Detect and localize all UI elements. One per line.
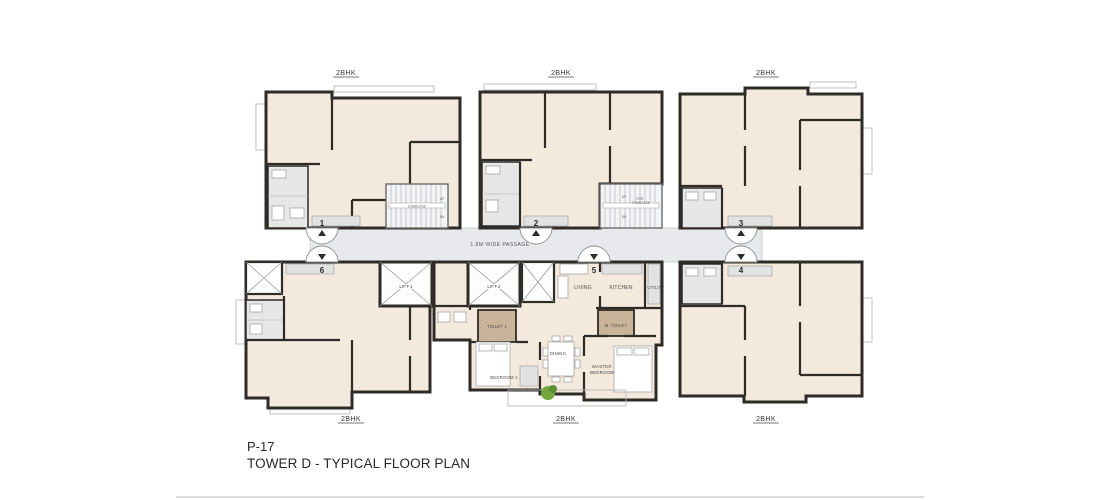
- wardrobe-icon: [520, 366, 538, 386]
- unit-type-top-right: 2BHK: [756, 68, 776, 77]
- floor-plan-drawing: UP STAIRCASE DN UP DN LIFT 1 LIFT 2 1.8M…: [0, 0, 1100, 500]
- room-label-master-bedroom: MASTER BEDROOM: [580, 364, 624, 376]
- lift-2-label: LIFT 2: [487, 284, 501, 289]
- page-divider: [176, 496, 924, 498]
- sheet-title: TOWER D - TYPICAL FLOOR PLAN: [247, 455, 470, 473]
- stair-1-label: STAIRCASE: [408, 205, 426, 209]
- unit-type-bottom-center: 2BHK: [556, 414, 576, 423]
- lift-1-label: LIFT 1: [399, 284, 413, 289]
- unit-number-3: 3: [739, 219, 744, 228]
- staircase-1: UP STAIRCASE DN: [386, 184, 448, 228]
- unit-number-1: 1: [320, 219, 325, 228]
- stair-2-dn-mark: DN: [622, 215, 627, 219]
- room-label-living: LIVING: [574, 285, 592, 291]
- lift-2: LIFT 2: [468, 262, 520, 306]
- unit-number-2: 2: [534, 219, 539, 228]
- stair-2-label: FIRE STAIRCASE: [632, 197, 648, 206]
- room-label-utility: UTILITY: [647, 285, 664, 290]
- staircase-2: UP DN: [600, 184, 662, 228]
- sheet-code: P-17: [247, 438, 470, 455]
- passage-label: 1.8M WIDE PASSAGE: [470, 242, 529, 248]
- stair-1-dn-mark: DN: [440, 215, 445, 219]
- floor-plan-page: UP STAIRCASE DN UP DN LIFT 1 LIFT 2 1.8M…: [0, 0, 1100, 500]
- lift-1: LIFT 1: [380, 262, 432, 306]
- unit-type-top-center: 2BHK: [551, 68, 571, 77]
- room-label-toilet1: TOILET 1: [487, 324, 507, 329]
- room-label-bedroom1: BEDROOM 1: [490, 375, 518, 380]
- room-label-m-toilet: M. TOILET: [605, 323, 628, 328]
- unit-number-5: 5: [592, 266, 597, 275]
- room-label-kitchen: KITCHEN: [609, 285, 633, 291]
- unit-3-plan: [680, 88, 862, 228]
- unit-number-4: 4: [739, 266, 744, 275]
- unit-type-bottom-right: 2BHK: [756, 414, 776, 423]
- stair-1-up-mark: UP: [440, 197, 444, 201]
- unit-type-top-left: 2BHK: [336, 68, 356, 77]
- unit-4-plan: [680, 262, 862, 402]
- unit-type-bottom-left: 2BHK: [341, 414, 361, 423]
- stair-2-up-mark: UP: [622, 195, 626, 199]
- unit-number-6: 6: [320, 266, 325, 275]
- room-label-dining: DINING: [550, 351, 567, 356]
- title-block: P-17 TOWER D - TYPICAL FLOOR PLAN: [247, 438, 470, 473]
